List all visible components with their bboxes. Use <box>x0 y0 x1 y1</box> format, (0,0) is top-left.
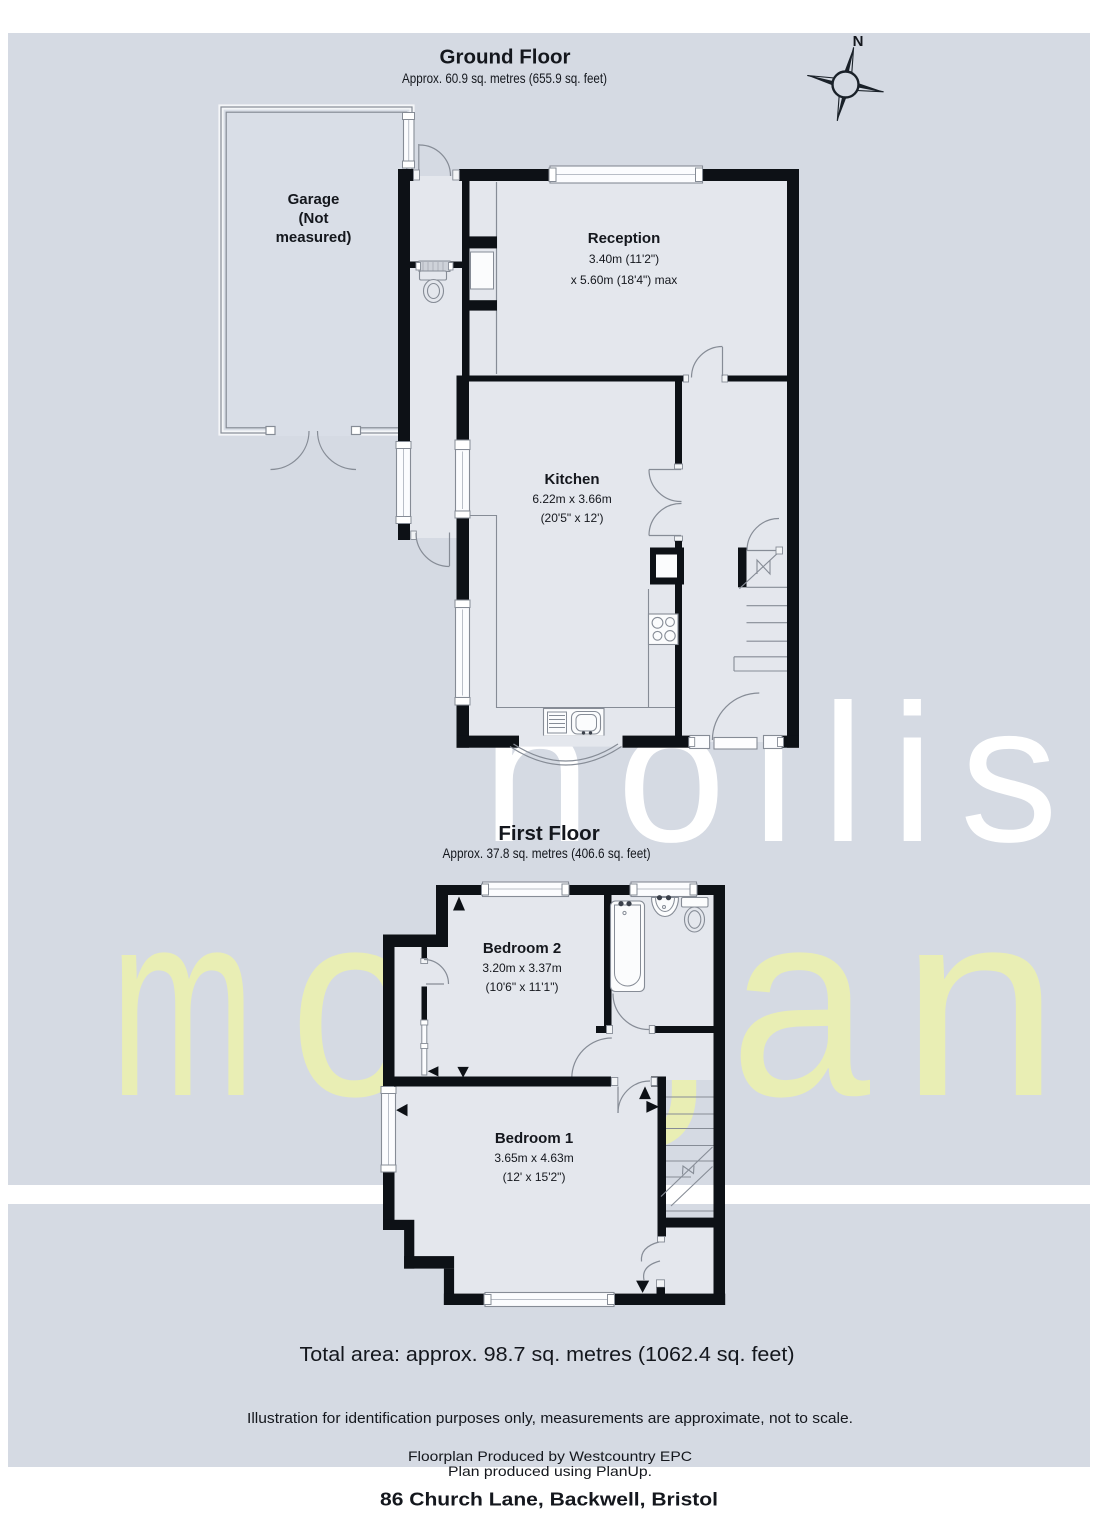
svg-text:Floorplan Produced by Westcoun: Floorplan Produced by Westcountry EPC <box>408 1448 692 1464</box>
svg-text:Reception: Reception <box>588 230 661 247</box>
svg-text:First Floor: First Floor <box>498 822 599 845</box>
svg-text:Approx. 37.8 sq. metres (406.: Approx. 37.8 sq. metres (406.6 sq. feet) <box>443 845 651 861</box>
svg-text:Illustration for identificatio: Illustration for identification purposes… <box>247 1411 853 1427</box>
svg-text:3.65m x 4.63m: 3.65m x 4.63m <box>494 1151 573 1165</box>
svg-text:(10'6" x 11'1"): (10'6" x 11'1") <box>486 980 559 994</box>
svg-text:6.22m x 3.66m: 6.22m x 3.66m <box>532 492 611 506</box>
svg-text:Bedroom 1: Bedroom 1 <box>495 1130 573 1147</box>
svg-text:(12' x 15'2"): (12' x 15'2") <box>503 1170 566 1184</box>
svg-text:3.40m (11'2"): 3.40m (11'2") <box>589 252 659 266</box>
svg-text:(Not: (Not <box>299 210 329 227</box>
svg-text:m: m <box>110 856 255 1152</box>
svg-text:86 Church Lane, Backwell, Bris: 86 Church Lane, Backwell, Bristol <box>380 1489 718 1510</box>
svg-text:n: n <box>900 856 1060 1152</box>
svg-text:N: N <box>853 33 864 50</box>
svg-text:Plan produced using PlanUp.: Plan produced using PlanUp. <box>448 1463 652 1479</box>
svg-text:Ground Floor: Ground Floor <box>440 46 571 69</box>
svg-text:a: a <box>730 856 872 1152</box>
svg-text:Kitchen: Kitchen <box>544 471 599 488</box>
svg-text:Garage: Garage <box>288 191 340 208</box>
svg-text:x 5.60m (18'4") max: x 5.60m (18'4") max <box>571 273 678 287</box>
svg-text:3.20m x 3.37m: 3.20m x 3.37m <box>482 961 561 975</box>
svg-text:(20'5" x 12'): (20'5" x 12') <box>541 511 604 525</box>
svg-text:measured): measured) <box>276 229 352 246</box>
svg-text:Total area: approx. 98.7 sq.: Total area: approx. 98.7 sq. metres (106… <box>300 1344 795 1366</box>
svg-text:Bedroom 2: Bedroom 2 <box>483 940 561 957</box>
svg-text:Approx. 60.9 sq. metres (655.: Approx. 60.9 sq. metres (655.9 sq. feet) <box>402 70 607 86</box>
